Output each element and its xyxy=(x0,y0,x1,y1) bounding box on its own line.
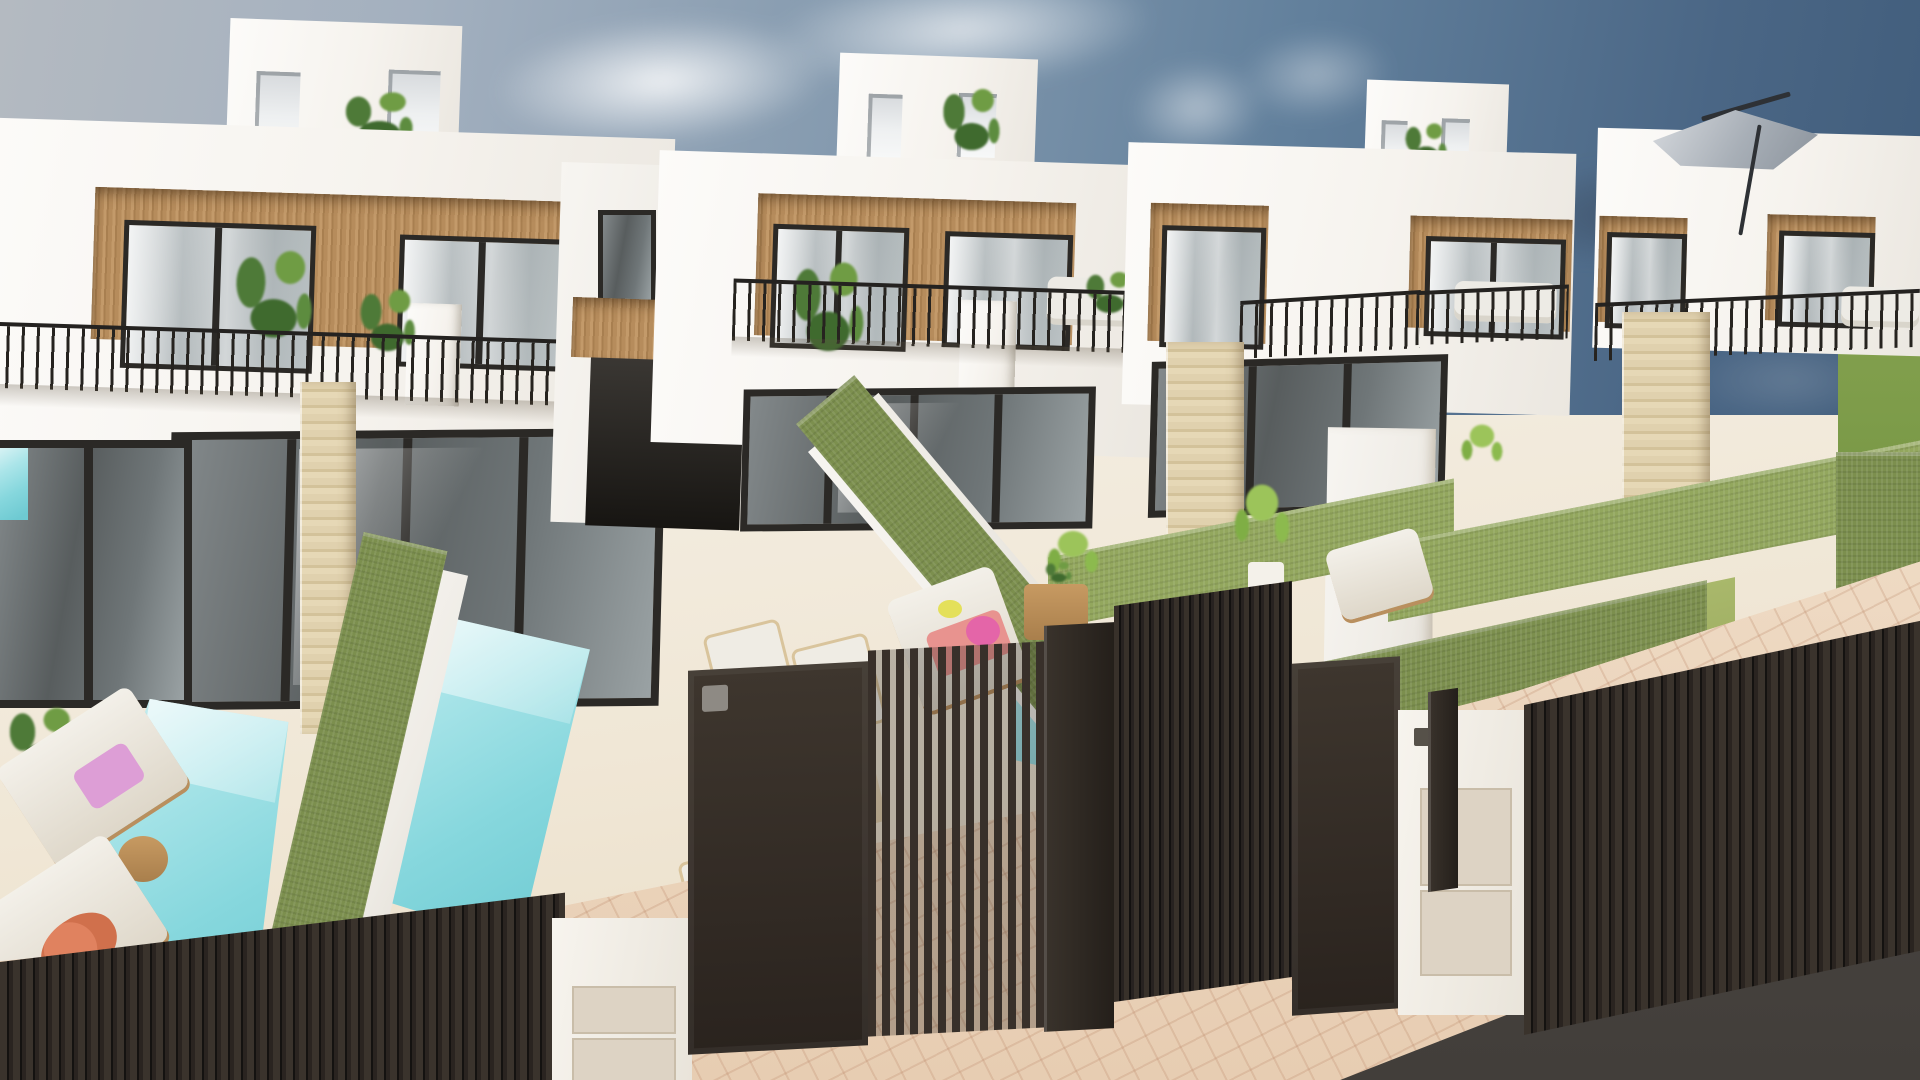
entrance-gate-solid-leaf xyxy=(688,661,868,1054)
glass-mullion xyxy=(991,394,1002,522)
balcony-railing xyxy=(1239,290,1421,359)
rooftop-plant xyxy=(930,72,1010,167)
garden-palm xyxy=(1452,408,1512,478)
gate-lock-plate xyxy=(702,685,728,712)
pool-sliver xyxy=(0,448,28,520)
slat-fence xyxy=(1114,581,1292,1002)
potted-palm xyxy=(1222,458,1302,570)
mailbox-pillar xyxy=(1398,710,1526,1015)
architectural-render-scene xyxy=(0,0,1920,1080)
letterbox-panel xyxy=(572,1038,676,1080)
glass-mullion xyxy=(84,448,93,700)
entrance-gate-slat-leaf xyxy=(868,641,1046,1036)
rattan-chair xyxy=(1860,346,1920,396)
letterbox-panel xyxy=(1420,890,1512,976)
mailbox-pillar xyxy=(552,918,692,1080)
gate-post xyxy=(1044,622,1114,1032)
link-window xyxy=(598,210,656,308)
sun-hat xyxy=(938,600,962,618)
fence-post xyxy=(1428,688,1458,892)
letterbox-panel xyxy=(572,986,676,1034)
balcony-railing xyxy=(1415,284,1569,345)
roof-door-recess xyxy=(867,94,903,159)
pillow xyxy=(966,616,1000,646)
table-plant xyxy=(1040,556,1076,588)
neighbor-ground-glass xyxy=(0,440,192,708)
pedestrian-gate xyxy=(1292,656,1400,1016)
